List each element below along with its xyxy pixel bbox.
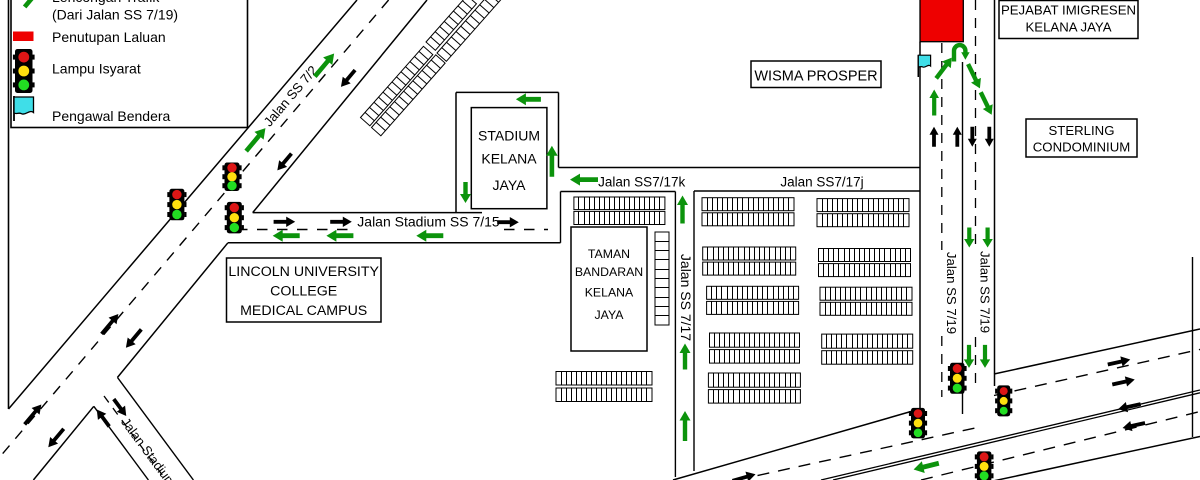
svg-text:Lampu Isyarat: Lampu Isyarat — [52, 61, 141, 77]
svg-text:Jalan SS 7/19: Jalan SS 7/19 — [978, 251, 993, 333]
svg-text:PEJABAT IMIGRESEN: PEJABAT IMIGRESEN — [1001, 3, 1136, 18]
svg-text:Lencongan Trafik: Lencongan Trafik — [52, 0, 160, 5]
svg-text:Jalan SS 7/19: Jalan SS 7/19 — [944, 252, 959, 334]
svg-text:Penutupan Laluan: Penutupan Laluan — [52, 29, 166, 45]
svg-text:JAYA: JAYA — [493, 177, 527, 193]
svg-text:(Dari Jalan SS 7/19): (Dari Jalan SS 7/19) — [52, 7, 178, 23]
svg-text:KELANA JAYA: KELANA JAYA — [1026, 19, 1112, 34]
svg-text:LINCOLN UNIVERSITY: LINCOLN UNIVERSITY — [228, 264, 379, 280]
svg-text:Jalan SS 7/2: Jalan SS 7/2 — [261, 63, 321, 130]
svg-text:KELANA: KELANA — [481, 150, 537, 166]
svg-text:COLLEGE: COLLEGE — [270, 284, 337, 300]
svg-text:Jalan SS7/17j: Jalan SS7/17j — [780, 175, 863, 190]
svg-text:BANDARAN: BANDARAN — [575, 265, 643, 279]
svg-text:KELANA: KELANA — [585, 286, 634, 300]
svg-text:JAYA: JAYA — [595, 308, 625, 322]
svg-text:Jalan SS7/17k: Jalan SS7/17k — [598, 175, 685, 190]
svg-text:Pengawal Bendera: Pengawal Bendera — [52, 108, 171, 124]
svg-text:Jalan SS 7/17: Jalan SS 7/17 — [678, 254, 694, 341]
svg-text:STERLING: STERLING — [1049, 123, 1115, 138]
svg-text:WISMA PROSPER: WISMA PROSPER — [754, 69, 877, 85]
svg-text:MEDICAL CAMPUS: MEDICAL CAMPUS — [240, 303, 367, 319]
svg-text:STADIUM: STADIUM — [478, 128, 540, 144]
svg-text:CONDOMINIUM: CONDOMINIUM — [1033, 140, 1130, 155]
svg-text:TAMAN: TAMAN — [588, 247, 630, 261]
svg-text:Jalan Stadium SS 7/15: Jalan Stadium SS 7/15 — [357, 213, 500, 229]
